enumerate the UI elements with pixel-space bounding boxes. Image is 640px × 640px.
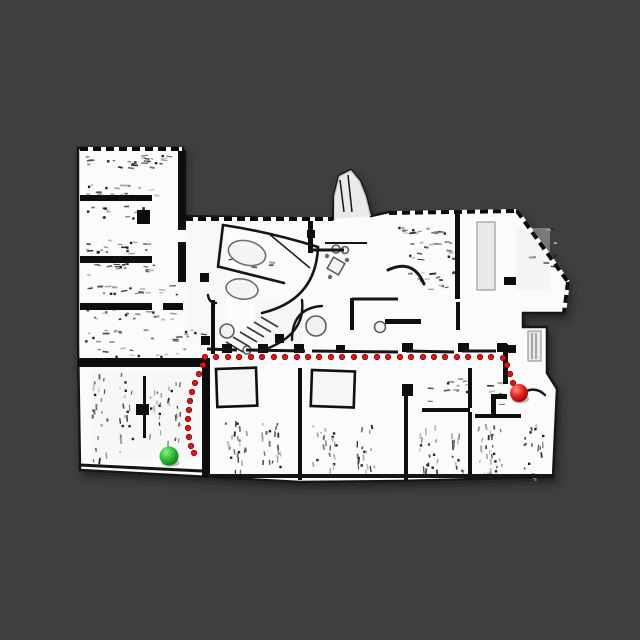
clutter-mark bbox=[124, 395, 125, 398]
clutter-mark bbox=[154, 316, 156, 317]
clutter-mark bbox=[135, 314, 140, 315]
clutter-mark bbox=[491, 459, 492, 465]
floor-plan-map[interactable] bbox=[0, 0, 640, 640]
clutter-dot bbox=[494, 460, 496, 462]
wall-segment bbox=[307, 230, 315, 238]
clutter-mark bbox=[148, 244, 151, 245]
clutter-mark bbox=[426, 428, 427, 435]
clutter-mark bbox=[106, 452, 107, 459]
clutter-dot bbox=[126, 411, 128, 413]
clutter-dot bbox=[316, 459, 318, 461]
clutter-mark bbox=[417, 259, 424, 260]
clutter-dot bbox=[152, 311, 154, 313]
clutter-mark bbox=[329, 453, 330, 457]
round-table bbox=[220, 324, 234, 338]
clutter-dot bbox=[431, 466, 433, 468]
clutter-mark bbox=[175, 438, 176, 441]
clutter-dot bbox=[448, 256, 450, 258]
clutter-mark bbox=[175, 415, 176, 421]
clutter-mark bbox=[104, 247, 109, 248]
clutter-dot bbox=[528, 463, 530, 465]
meeting-table bbox=[216, 368, 257, 407]
clutter-mark bbox=[358, 457, 359, 464]
clutter-dot bbox=[412, 229, 414, 231]
clutter-mark bbox=[372, 425, 373, 429]
clutter-dot bbox=[159, 413, 161, 415]
waypoint-dot bbox=[294, 354, 299, 359]
wall-line bbox=[207, 349, 237, 350]
clutter-mark bbox=[170, 313, 177, 314]
waypoint-dot bbox=[188, 443, 193, 448]
clutter-mark bbox=[245, 448, 246, 453]
clutter-mark bbox=[492, 434, 493, 436]
waypoint-dot bbox=[185, 416, 190, 421]
clutter-mark bbox=[176, 337, 183, 338]
wall-segment bbox=[80, 256, 152, 263]
clutter-dot bbox=[113, 293, 115, 295]
clutter-mark bbox=[426, 468, 427, 474]
waypoint-dot bbox=[351, 354, 356, 359]
clutter-mark bbox=[96, 448, 97, 452]
clutter-dot bbox=[115, 356, 117, 358]
clutter-mark bbox=[130, 355, 134, 356]
clutter-dot bbox=[269, 430, 271, 432]
clutter-dot bbox=[94, 394, 96, 396]
chair-dot bbox=[328, 275, 332, 279]
clutter-mark bbox=[449, 252, 454, 253]
clutter-mark bbox=[463, 381, 467, 382]
clutter-mark bbox=[145, 161, 148, 162]
clutter-mark bbox=[102, 351, 108, 352]
clutter-mark bbox=[103, 313, 108, 314]
clutter-mark bbox=[98, 388, 99, 393]
clutter-mark bbox=[171, 319, 175, 320]
clutter-dot bbox=[433, 454, 435, 456]
clutter-dot bbox=[363, 451, 365, 453]
clutter-dot bbox=[554, 255, 556, 257]
floor-tint bbox=[516, 228, 550, 290]
clutter-mark bbox=[111, 194, 115, 195]
clutter-mark bbox=[324, 435, 325, 439]
clutter-dot bbox=[495, 470, 497, 472]
clutter-dot bbox=[130, 242, 132, 244]
clutter-mark bbox=[156, 316, 160, 317]
clutter-dot bbox=[107, 160, 109, 162]
clutter-dot bbox=[335, 444, 337, 446]
clutter-dot bbox=[126, 250, 128, 252]
wall-segment bbox=[78, 358, 208, 367]
wall-segment bbox=[163, 303, 183, 310]
waypoint-dot bbox=[271, 354, 276, 359]
clutter-mark bbox=[240, 443, 241, 446]
clutter-mark bbox=[114, 332, 116, 333]
clutter-mark bbox=[128, 168, 134, 169]
wall-segment bbox=[202, 358, 210, 477]
clutter-mark bbox=[234, 449, 235, 454]
clutter-mark bbox=[421, 438, 422, 444]
clutter-mark bbox=[325, 428, 326, 432]
wall-segment bbox=[385, 319, 421, 324]
clutter-mark bbox=[120, 387, 121, 390]
clutter-mark bbox=[276, 426, 277, 430]
clutter-mark bbox=[161, 160, 167, 161]
clutter-mark bbox=[278, 450, 279, 455]
wall-segment bbox=[456, 302, 460, 330]
waypoint-dot bbox=[339, 354, 344, 359]
clutter-dot bbox=[542, 435, 544, 437]
waypoint-dot bbox=[442, 354, 447, 359]
clutter-dot bbox=[230, 456, 232, 458]
clutter-mark bbox=[184, 334, 188, 335]
clutter-mark bbox=[362, 427, 363, 432]
waypoint-dot bbox=[328, 354, 333, 359]
clutter-dot bbox=[279, 466, 281, 468]
clutter-mark bbox=[115, 188, 120, 189]
cabinet bbox=[477, 222, 495, 290]
clutter-dot bbox=[92, 337, 94, 339]
clutter-mark bbox=[238, 436, 239, 441]
clutter-mark bbox=[225, 423, 226, 425]
clutter-mark bbox=[492, 386, 494, 387]
clutter-mark bbox=[107, 266, 113, 267]
clutter-mark bbox=[502, 464, 503, 467]
clutter-dot bbox=[142, 207, 144, 209]
wall-segment bbox=[178, 242, 186, 282]
clutter-mark bbox=[128, 161, 132, 162]
clutter-mark bbox=[159, 415, 160, 419]
clutter-mark bbox=[145, 292, 150, 293]
wall-segment bbox=[298, 368, 302, 480]
clutter-mark bbox=[541, 452, 542, 458]
clutter-mark bbox=[326, 440, 327, 446]
clutter-dot bbox=[194, 332, 196, 334]
clutter-mark bbox=[465, 384, 468, 385]
clutter-mark bbox=[453, 445, 454, 450]
clutter-mark bbox=[444, 390, 450, 391]
waypoint-dot bbox=[305, 354, 310, 359]
clutter-mark bbox=[172, 339, 178, 340]
clutter-dot bbox=[447, 382, 449, 384]
waypoint-dot bbox=[510, 380, 515, 385]
clutter-mark bbox=[234, 431, 235, 436]
clutter-mark bbox=[489, 391, 495, 392]
round-table bbox=[375, 322, 386, 333]
waypoint-dot bbox=[420, 354, 425, 359]
clutter-mark bbox=[87, 275, 90, 276]
clutter-mark bbox=[153, 265, 156, 266]
chair-dot bbox=[325, 254, 329, 258]
clutter-mark bbox=[123, 404, 124, 409]
cabinet bbox=[528, 331, 541, 361]
clutter-mark bbox=[251, 267, 256, 268]
waypoint-dot bbox=[186, 407, 191, 412]
clutter-mark bbox=[125, 415, 126, 418]
clutter-dot bbox=[122, 425, 124, 427]
wall-segment bbox=[136, 404, 149, 415]
clutter-mark bbox=[370, 466, 371, 472]
clutter-mark bbox=[130, 350, 134, 351]
clutter-mark bbox=[363, 454, 364, 460]
clutter-mark bbox=[108, 240, 112, 241]
wall-segment bbox=[508, 345, 516, 353]
clutter-mark bbox=[131, 165, 138, 166]
waypoint-dot bbox=[192, 380, 197, 385]
clutter-mark bbox=[424, 247, 428, 248]
clutter-mark bbox=[165, 354, 168, 355]
clutter-mark bbox=[128, 186, 131, 187]
clutter-dot bbox=[457, 459, 459, 461]
clutter-mark bbox=[500, 429, 501, 432]
clutter-dot bbox=[493, 453, 495, 455]
clutter-dot bbox=[444, 232, 446, 234]
clutter-dot bbox=[132, 217, 134, 219]
clutter-dot bbox=[529, 431, 531, 433]
clutter-mark bbox=[107, 212, 111, 213]
wall-segment bbox=[504, 277, 516, 285]
clutter-mark bbox=[157, 392, 158, 394]
clutter-mark bbox=[99, 458, 100, 464]
clutter-mark bbox=[118, 167, 123, 168]
clutter-dot bbox=[466, 391, 468, 393]
clutter-mark bbox=[424, 467, 425, 474]
waypoint-dot bbox=[185, 425, 190, 430]
clutter-mark bbox=[160, 402, 161, 406]
clutter-mark bbox=[272, 461, 273, 464]
waypoint-dot bbox=[236, 354, 241, 359]
wall-segment bbox=[350, 298, 354, 330]
clutter-mark bbox=[150, 434, 151, 440]
clutter-mark bbox=[264, 452, 265, 456]
meeting-table bbox=[311, 370, 355, 407]
clutter-mark bbox=[107, 210, 110, 211]
clutter-mark bbox=[486, 424, 487, 430]
clutter-dot bbox=[236, 423, 238, 425]
waypoint-dot bbox=[454, 354, 459, 359]
waypoint-dot bbox=[316, 354, 321, 359]
wall-segment bbox=[137, 210, 150, 224]
clutter-mark bbox=[150, 167, 155, 168]
clutter-mark bbox=[374, 466, 375, 469]
clutter-dot bbox=[103, 216, 105, 218]
start-marker[interactable] bbox=[160, 447, 179, 466]
waypoint-dot bbox=[189, 389, 194, 394]
clutter-mark bbox=[176, 353, 178, 354]
wall-segment bbox=[455, 214, 460, 299]
waypoint-dot bbox=[507, 371, 512, 376]
clutter-dot bbox=[420, 444, 422, 446]
wall-segment bbox=[491, 394, 496, 414]
clutter-mark bbox=[96, 265, 101, 266]
clutter-dot bbox=[185, 331, 187, 333]
clutter-mark bbox=[417, 253, 422, 254]
clutter-mark bbox=[269, 262, 275, 263]
waypoint-dot bbox=[397, 354, 402, 359]
clutter-mark bbox=[140, 289, 145, 290]
clutter-mark bbox=[154, 406, 155, 412]
clutter-mark bbox=[417, 231, 421, 232]
map-viewport[interactable] bbox=[0, 0, 640, 640]
wall-line bbox=[312, 351, 398, 352]
wall-segment bbox=[80, 195, 152, 201]
clutter-mark bbox=[114, 264, 121, 265]
clutter-dot bbox=[87, 210, 89, 212]
clutter-dot bbox=[333, 432, 335, 434]
clutter-mark bbox=[119, 319, 122, 320]
clutter-dot bbox=[125, 390, 127, 392]
wall-segment bbox=[201, 336, 210, 345]
clutter-mark bbox=[526, 443, 527, 446]
clutter-mark bbox=[323, 444, 324, 449]
clutter-mark bbox=[410, 257, 415, 258]
wall-segment bbox=[80, 303, 152, 310]
waypoint-dot bbox=[248, 354, 253, 359]
wall-segment bbox=[468, 412, 472, 480]
wall-segment bbox=[200, 273, 209, 282]
waypoint-dot bbox=[362, 354, 367, 359]
clutter-mark bbox=[263, 460, 264, 465]
clutter-dot bbox=[361, 464, 363, 466]
clutter-mark bbox=[118, 332, 122, 333]
clutter-dot bbox=[128, 425, 130, 427]
waypoint-dot bbox=[385, 354, 390, 359]
waypoint-dot bbox=[191, 450, 196, 455]
clutter-mark bbox=[228, 441, 229, 447]
clutter-mark bbox=[161, 158, 168, 159]
waypoint-dot bbox=[225, 354, 230, 359]
clutter-mark bbox=[498, 383, 503, 384]
clutter-dot bbox=[104, 207, 106, 209]
wall-segment bbox=[211, 300, 215, 354]
clutter-mark bbox=[429, 273, 436, 274]
waypoint-dot bbox=[200, 362, 205, 367]
clutter-dot bbox=[125, 314, 127, 316]
clutter-mark bbox=[229, 447, 230, 450]
clutter-mark bbox=[246, 431, 247, 436]
clutter-mark bbox=[93, 459, 94, 462]
clutter-dot bbox=[238, 451, 240, 453]
wall-segment bbox=[475, 414, 521, 418]
clutter-mark bbox=[157, 400, 158, 405]
clutter-dot bbox=[88, 186, 90, 188]
clutter-dot bbox=[124, 381, 126, 383]
clutter-mark bbox=[138, 292, 143, 293]
waypoint-dot bbox=[202, 354, 207, 359]
clutter-mark bbox=[446, 250, 451, 251]
wall-segment bbox=[402, 384, 413, 396]
clutter-mark bbox=[107, 418, 108, 421]
clutter-mark bbox=[492, 454, 493, 458]
waypoint-dot bbox=[213, 354, 218, 359]
clutter-mark bbox=[277, 423, 278, 425]
clutter-mark bbox=[358, 463, 359, 469]
waypoint-dot bbox=[196, 371, 201, 376]
wall-segment bbox=[497, 343, 507, 352]
clutter-mark bbox=[166, 156, 172, 157]
clutter-mark bbox=[317, 433, 318, 437]
round-table bbox=[306, 316, 326, 336]
wall-line bbox=[246, 350, 305, 351]
clutter-mark bbox=[278, 445, 279, 451]
clutter-mark bbox=[277, 456, 278, 462]
clutter-dot bbox=[160, 356, 162, 358]
clutter-mark bbox=[313, 462, 314, 467]
waypoint-dot bbox=[465, 354, 470, 359]
waypoint-dot bbox=[504, 362, 509, 367]
clutter-dot bbox=[138, 355, 140, 357]
clutter-mark bbox=[487, 454, 488, 459]
clutter-mark bbox=[121, 291, 127, 292]
clutter-mark bbox=[179, 422, 180, 426]
clutter-mark bbox=[280, 451, 281, 456]
waypoint-dot bbox=[408, 354, 413, 359]
clutter-dot bbox=[85, 340, 87, 342]
clutter-mark bbox=[538, 445, 539, 452]
clutter-mark bbox=[479, 427, 480, 431]
clutter-mark bbox=[420, 242, 424, 243]
clutter-mark bbox=[436, 277, 440, 278]
clutter-dot bbox=[398, 227, 400, 229]
clutter-mark bbox=[409, 233, 415, 234]
clutter-mark bbox=[480, 446, 481, 450]
clutter-dot bbox=[110, 293, 112, 295]
waypoint-dot bbox=[431, 354, 436, 359]
clutter-mark bbox=[362, 446, 363, 449]
clutter-mark bbox=[334, 454, 335, 460]
clutter-mark bbox=[121, 373, 122, 377]
clutter-mark bbox=[121, 437, 122, 444]
waypoint-dot bbox=[477, 354, 482, 359]
wall-segment bbox=[468, 368, 472, 408]
clutter-dot bbox=[97, 251, 99, 253]
clutter-dot bbox=[171, 390, 173, 392]
clutter-mark bbox=[141, 155, 148, 156]
clutter-mark bbox=[144, 158, 149, 159]
clutter-mark bbox=[138, 187, 140, 188]
wall-segment bbox=[422, 408, 470, 412]
waypoint-dot bbox=[187, 398, 192, 403]
waypoint-dot bbox=[374, 354, 379, 359]
clutter-mark bbox=[429, 443, 430, 445]
clutter-mark bbox=[367, 464, 368, 470]
waypoint-dot bbox=[500, 355, 505, 360]
clutter-dot bbox=[551, 228, 553, 230]
wall-line bbox=[406, 351, 454, 352]
wall-segment bbox=[178, 150, 186, 230]
clutter-dot bbox=[534, 428, 536, 430]
clutter-mark bbox=[87, 160, 92, 161]
clutter-dot bbox=[105, 187, 107, 189]
clutter-dot bbox=[126, 247, 128, 249]
chair-dot bbox=[345, 258, 349, 262]
clutter-mark bbox=[429, 455, 430, 458]
clutter-mark bbox=[239, 426, 240, 432]
clutter-dot bbox=[155, 162, 157, 164]
clutter-mark bbox=[89, 288, 93, 289]
waypoint-dot bbox=[282, 354, 287, 359]
goal-marker[interactable] bbox=[510, 384, 528, 402]
clutter-mark bbox=[148, 270, 154, 271]
clutter-mark bbox=[531, 427, 532, 430]
clutter-mark bbox=[490, 468, 491, 472]
waypoint-dot bbox=[488, 354, 493, 359]
waypoint-dot bbox=[186, 434, 191, 439]
clutter-dot bbox=[132, 438, 134, 440]
clutter-dot bbox=[150, 407, 152, 409]
clutter-mark bbox=[180, 382, 181, 387]
clutter-mark bbox=[437, 459, 438, 463]
clutter-mark bbox=[120, 418, 121, 424]
clutter-mark bbox=[143, 266, 148, 267]
